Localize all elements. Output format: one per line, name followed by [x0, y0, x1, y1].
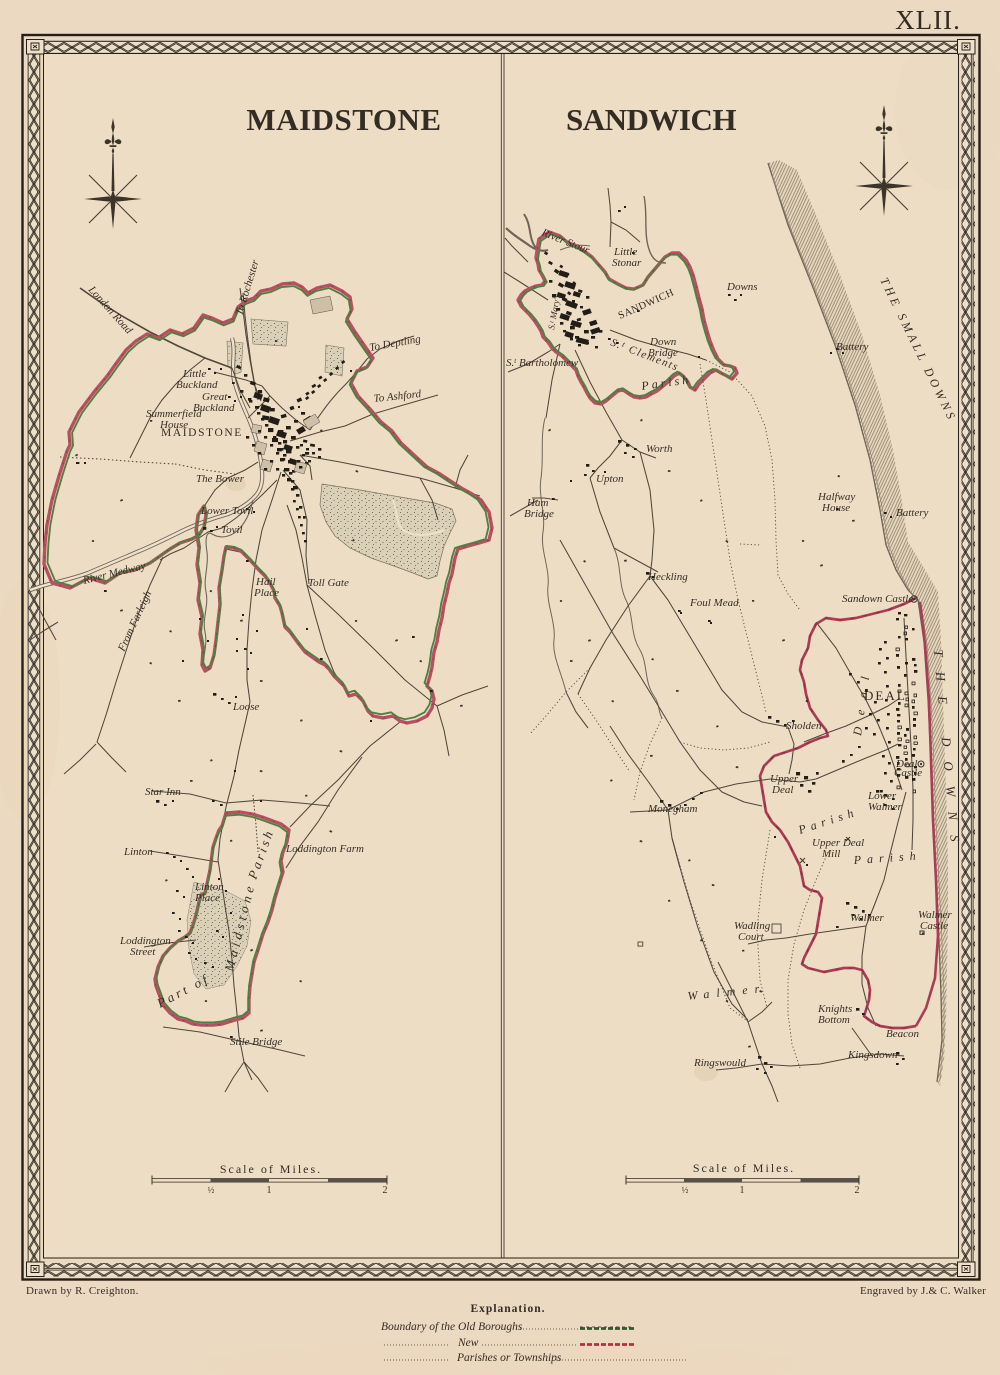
svg-text:Boundary of the Old Boroughs: Boundary of the Old Boroughs	[381, 1321, 523, 1333]
svg-text:Explanation.: Explanation.	[471, 1303, 546, 1315]
svg-text:Drawn by R. Creighton.: Drawn by R. Creighton.	[26, 1285, 139, 1297]
svg-text:New: New	[457, 1337, 479, 1349]
svg-text:XLII.: XLII.	[895, 5, 961, 35]
svg-text:Parishes or Townships: Parishes or Townships	[456, 1352, 562, 1364]
svg-text:Engraved by J.& C. Walker: Engraved by J.& C. Walker	[860, 1285, 986, 1297]
